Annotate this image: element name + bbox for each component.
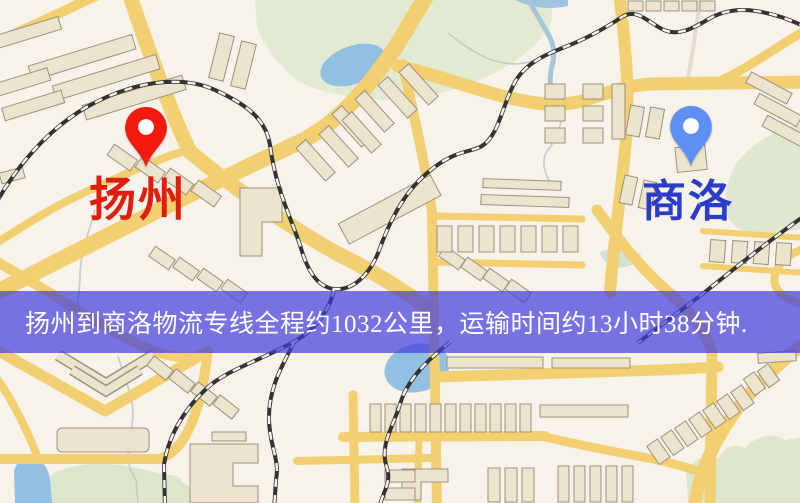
- destination-pin-hole: [683, 118, 699, 134]
- map-canvas[interactable]: 扬州 商洛 扬州到商洛物流专线全程约1032公里，运输时间约13小时38分钟.: [0, 0, 800, 503]
- origin-pin-icon[interactable]: [121, 104, 171, 170]
- origin-pin-shape: [125, 107, 167, 167]
- route-info-text: 扬州到商洛物流专线全程约1032公里，运输时间约13小时38分钟.: [25, 304, 748, 340]
- destination-pin-shape: [670, 106, 712, 166]
- destination-pin-icon[interactable]: [666, 103, 716, 169]
- map-graphic: [0, 0, 800, 503]
- origin-pin-hole: [138, 119, 154, 135]
- origin-label: 扬州: [38, 178, 238, 225]
- route-info-banner: 扬州到商洛物流专线全程约1032公里，运输时间约13小时38分钟.: [0, 291, 800, 353]
- destination-label: 商洛: [588, 180, 788, 224]
